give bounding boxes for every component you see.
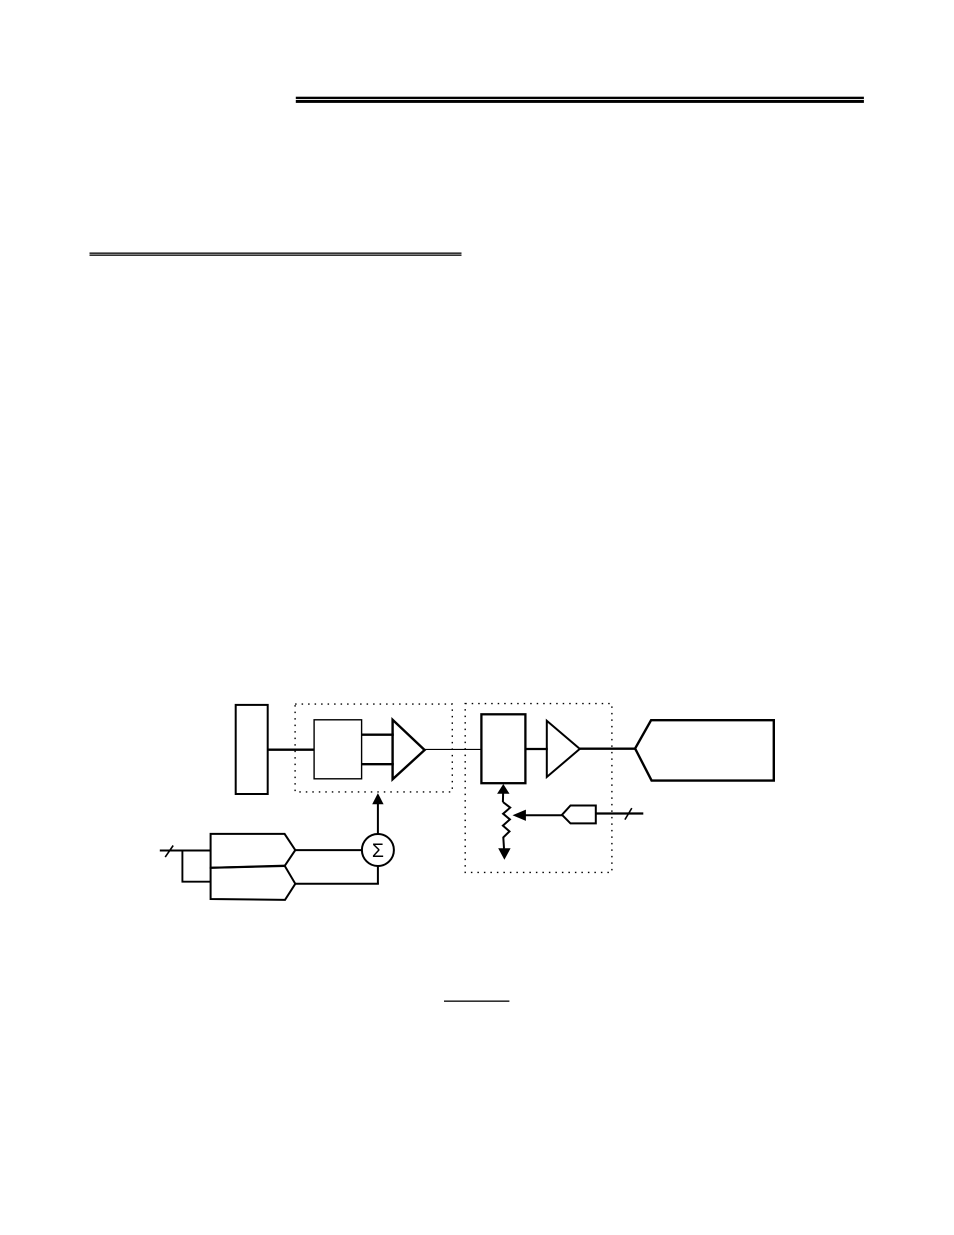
svg-text:Σ: Σ [372, 840, 384, 862]
